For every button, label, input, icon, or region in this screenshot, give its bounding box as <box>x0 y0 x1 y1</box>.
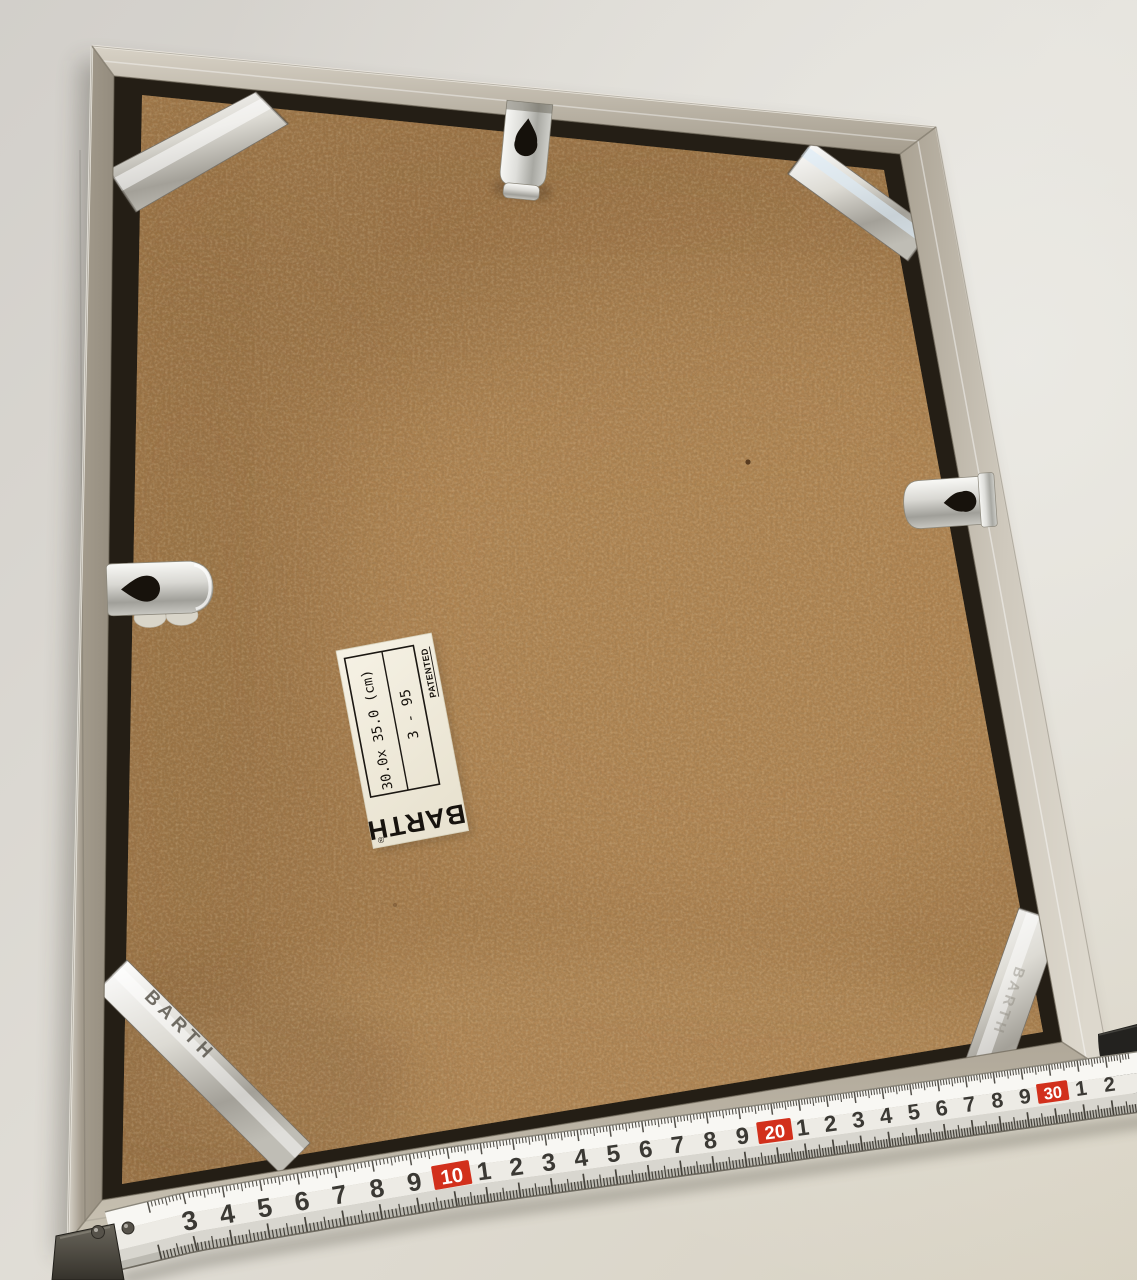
tape-tick-top <box>818 1097 819 1102</box>
tape-tick-top <box>580 1130 581 1135</box>
tape-tick-top <box>622 1124 623 1129</box>
tape-tick-top <box>929 1082 930 1087</box>
tape-tick-top <box>765 1105 766 1110</box>
tape-tick-top <box>843 1094 844 1099</box>
tape-tick-top <box>1103 1057 1104 1062</box>
tape-tick-top <box>745 1107 746 1112</box>
tape-tick-top <box>490 1142 491 1147</box>
tape-tick-top <box>790 1101 791 1106</box>
tape-tick-top <box>451 1147 452 1152</box>
tape-tick-top <box>703 1113 704 1118</box>
tape-tick-top <box>1002 1071 1003 1076</box>
tape-tick-top <box>461 1146 462 1151</box>
tape-tick-top <box>519 1138 520 1143</box>
tape-tick-top <box>700 1113 701 1118</box>
tape-tick-top <box>879 1089 880 1094</box>
tape-tick-top <box>1128 1054 1129 1059</box>
tape-tick-top <box>946 1079 947 1084</box>
tape-tick-top <box>487 1142 488 1147</box>
tape-tick-top <box>801 1099 802 1104</box>
tape-tick-top <box>458 1146 459 1151</box>
tape-tick-top <box>999 1072 1000 1077</box>
tape-tick-top <box>574 1131 575 1136</box>
tape-tick-top <box>957 1078 958 1083</box>
tape-tick-top <box>684 1116 685 1121</box>
tape-tick-top <box>713 1112 714 1117</box>
tape-tick-top <box>927 1082 928 1087</box>
tape-tick-top <box>835 1095 836 1100</box>
tape-tick-top <box>477 1144 478 1149</box>
tape-tick-top <box>1027 1068 1028 1073</box>
tape-decade-label: 10 <box>439 1164 465 1189</box>
tape-tick-top <box>829 1096 830 1101</box>
tape-tick-top <box>943 1080 944 1085</box>
tape-tick-top <box>687 1115 688 1120</box>
tape-tick-top <box>1088 1059 1089 1064</box>
tape-tick-top <box>877 1089 878 1094</box>
tape-tick-top <box>587 1129 588 1134</box>
tape-tick-top <box>616 1125 617 1130</box>
tape-tick-top <box>1018 1069 1019 1074</box>
tape-tick-top <box>1117 1055 1118 1060</box>
tape-tick-top <box>639 1122 640 1127</box>
tape-tick-top <box>568 1131 569 1136</box>
tape-tick-top <box>788 1101 789 1106</box>
tape-tick-top <box>742 1108 743 1113</box>
tape-tick-top <box>1038 1066 1039 1071</box>
tape-tick-top <box>503 1140 504 1145</box>
tape-tick-top <box>484 1143 485 1148</box>
tape-tick-top <box>888 1087 889 1092</box>
tape-tick-top <box>874 1089 875 1094</box>
tape-tick-top <box>768 1104 769 1109</box>
tape-tick-top <box>1024 1068 1025 1073</box>
tape-tick-top <box>1074 1061 1075 1066</box>
tape-tick-top <box>1097 1058 1098 1063</box>
tape-tick-top <box>988 1073 989 1078</box>
tape-tick-top <box>652 1120 653 1125</box>
tape-tick-top <box>977 1075 978 1080</box>
tape-tick-top <box>913 1084 914 1089</box>
tape-tick-top <box>1122 1054 1123 1059</box>
tape-tick-top <box>804 1099 805 1104</box>
tape-tick-top <box>1080 1060 1081 1065</box>
tape-tick-top <box>542 1135 543 1140</box>
tape-tick-top <box>509 1139 510 1144</box>
tape-tick-top <box>1125 1054 1126 1059</box>
tape-tick-top <box>1010 1070 1011 1075</box>
tape-tick-top <box>1032 1067 1033 1072</box>
tape-tick-top <box>548 1134 549 1139</box>
tape-tick-top <box>535 1136 536 1141</box>
tape-tick-top <box>899 1086 900 1091</box>
tape-tick-top <box>815 1098 816 1103</box>
tape-tick-top <box>838 1094 839 1099</box>
tape-tick-top <box>590 1128 591 1133</box>
tape-tick-top <box>982 1074 983 1079</box>
tape-tick-top <box>1071 1062 1072 1067</box>
tape-tick-top <box>963 1077 964 1082</box>
tape-tick-top <box>857 1092 858 1097</box>
tape-tick-top <box>985 1074 986 1079</box>
board-scuff-dot <box>393 903 397 907</box>
tape-tick-top <box>732 1109 733 1114</box>
tape-tick-top <box>810 1098 811 1103</box>
tape-tick-top <box>846 1093 847 1098</box>
tape-tick-top <box>726 1110 727 1115</box>
tape-tick-top <box>719 1111 720 1116</box>
tape-tick-top <box>493 1142 494 1147</box>
tape-tick-top <box>648 1120 649 1125</box>
tape-tick-top <box>1086 1060 1087 1065</box>
tape-tick-top <box>761 1105 762 1110</box>
tape-tick-top <box>954 1078 955 1083</box>
tape-tick-top <box>1060 1063 1061 1068</box>
tape-tick-top <box>600 1127 601 1132</box>
tape-tick-top <box>949 1079 950 1084</box>
tape-tick-top <box>960 1077 961 1082</box>
tape-tick-top <box>619 1124 620 1129</box>
tape-decade-label: 30 <box>1042 1082 1063 1103</box>
tape-tick-top <box>693 1114 694 1119</box>
tape-tick-top <box>776 1103 777 1108</box>
tape-tick-top <box>538 1135 539 1140</box>
tape-tick-top <box>1004 1071 1005 1076</box>
tape-tick-top <box>907 1085 908 1090</box>
photo-back-of-picture-frame: BARTH BARTH <box>0 0 1137 1280</box>
tape-decade-label: 20 <box>763 1120 786 1144</box>
tape-tick-top <box>558 1133 559 1138</box>
scene: BARTH BARTH <box>0 0 1137 1280</box>
tape-tick-top <box>1016 1069 1017 1074</box>
tape-tick-top <box>821 1097 822 1102</box>
tape-tick-top <box>1111 1056 1112 1061</box>
tape-tick-top <box>532 1136 533 1141</box>
tape-tick-top <box>782 1102 783 1107</box>
tape-rivet <box>92 1226 105 1239</box>
tape-tick-top <box>668 1118 669 1123</box>
tape-tick-top <box>1013 1070 1014 1075</box>
tape-tick-top <box>968 1076 969 1081</box>
hanger-clip-right <box>902 472 998 532</box>
tape-tick-top <box>584 1129 585 1134</box>
tape-tick-top <box>807 1099 808 1104</box>
board-pin-hole <box>745 459 750 464</box>
tape-tick-top <box>735 1109 736 1114</box>
tape-tick-top <box>613 1125 614 1130</box>
tape-tick-top <box>1029 1068 1030 1073</box>
tape-tick-top <box>1083 1060 1084 1065</box>
tape-tick-top <box>729 1109 730 1114</box>
tape-tick-top <box>832 1095 833 1100</box>
tape-tick-top <box>902 1085 903 1090</box>
tape-tick-top <box>671 1117 672 1122</box>
tape-tick-top <box>758 1106 759 1111</box>
tape-tick-top <box>1046 1065 1047 1070</box>
tape-tick-top <box>629 1123 630 1128</box>
tape-tick-top <box>774 1103 775 1108</box>
tape-tick-top <box>454 1147 455 1152</box>
tape-rivet-highlight <box>124 1224 128 1228</box>
tape-tick-top <box>597 1128 598 1133</box>
tape-tick-top <box>918 1083 919 1088</box>
tape-tick-top <box>645 1121 646 1126</box>
tape-tick-top <box>863 1091 864 1096</box>
tape-tick-top <box>935 1081 936 1086</box>
tape-tick-top <box>1041 1066 1042 1071</box>
tape-tick-top <box>710 1112 711 1117</box>
tape-tick-top <box>1055 1064 1056 1069</box>
tape-tick-top <box>467 1145 468 1150</box>
tape-tick-top <box>1094 1058 1095 1063</box>
tape-tick-top <box>500 1141 501 1146</box>
tape-tick-top <box>865 1091 866 1096</box>
tape-tick-top <box>871 1090 872 1095</box>
tape-tick-top <box>885 1088 886 1093</box>
tape-tick-top <box>860 1091 861 1096</box>
tape-tick-top <box>632 1123 633 1128</box>
tape-tick-top <box>664 1118 665 1123</box>
tape-tick-top <box>1052 1064 1053 1069</box>
tape-tick-top <box>1066 1062 1067 1067</box>
tape-tick-top <box>471 1145 472 1150</box>
tape-tick-top <box>932 1081 933 1086</box>
tape-tick-top <box>996 1072 997 1077</box>
tape-tick-top <box>893 1087 894 1092</box>
tape-tick-top <box>1114 1056 1115 1061</box>
tape-tick-top <box>1057 1064 1058 1069</box>
tape-tick-top <box>779 1103 780 1108</box>
tape-tick-top <box>677 1117 678 1122</box>
tape-tick-top <box>571 1131 572 1136</box>
tape-tick-top <box>603 1127 604 1132</box>
tape-tick-top <box>1100 1058 1101 1063</box>
tape-tick-top <box>849 1093 850 1098</box>
tape-tick-top <box>904 1085 905 1090</box>
tape-tick-top <box>796 1100 797 1105</box>
tape-tick-top <box>748 1107 749 1112</box>
tape-tick-top <box>655 1120 656 1125</box>
tape-tick-top <box>681 1116 682 1121</box>
tape-tick-top <box>716 1111 717 1116</box>
tape-tick-top <box>506 1140 507 1145</box>
tape-tick-top <box>824 1096 825 1101</box>
tape-tick-top <box>516 1139 517 1144</box>
tape-tick-top <box>635 1122 636 1127</box>
tape-tick-top <box>974 1075 975 1080</box>
tape-tick-top <box>991 1073 992 1078</box>
tape-tick-top <box>606 1126 607 1131</box>
tape-tick-top <box>564 1132 565 1137</box>
tape-tick-top <box>555 1133 556 1138</box>
tape-tick-top <box>1108 1056 1109 1061</box>
tape-tick-top <box>1043 1066 1044 1071</box>
tape-tick-top <box>890 1087 891 1092</box>
tape-rivet <box>122 1222 134 1234</box>
tape-tick-top <box>940 1080 941 1085</box>
tape-tick-top <box>921 1083 922 1088</box>
tape-tick-top <box>852 1092 853 1097</box>
tape-tick-top <box>971 1076 972 1081</box>
tape-tick-top <box>522 1138 523 1143</box>
tape-tick-top <box>474 1144 475 1149</box>
tape-tick-top <box>915 1084 916 1089</box>
tape-tick-top <box>526 1137 527 1142</box>
tape-tick-top <box>697 1114 698 1119</box>
tape-tick-top <box>661 1119 662 1124</box>
tape-rivet-highlight <box>94 1228 98 1232</box>
tape-tick-top <box>793 1101 794 1106</box>
tape-tick-top <box>551 1134 552 1139</box>
tape-tick-top <box>1069 1062 1070 1067</box>
tape-tick-top <box>752 1106 753 1111</box>
